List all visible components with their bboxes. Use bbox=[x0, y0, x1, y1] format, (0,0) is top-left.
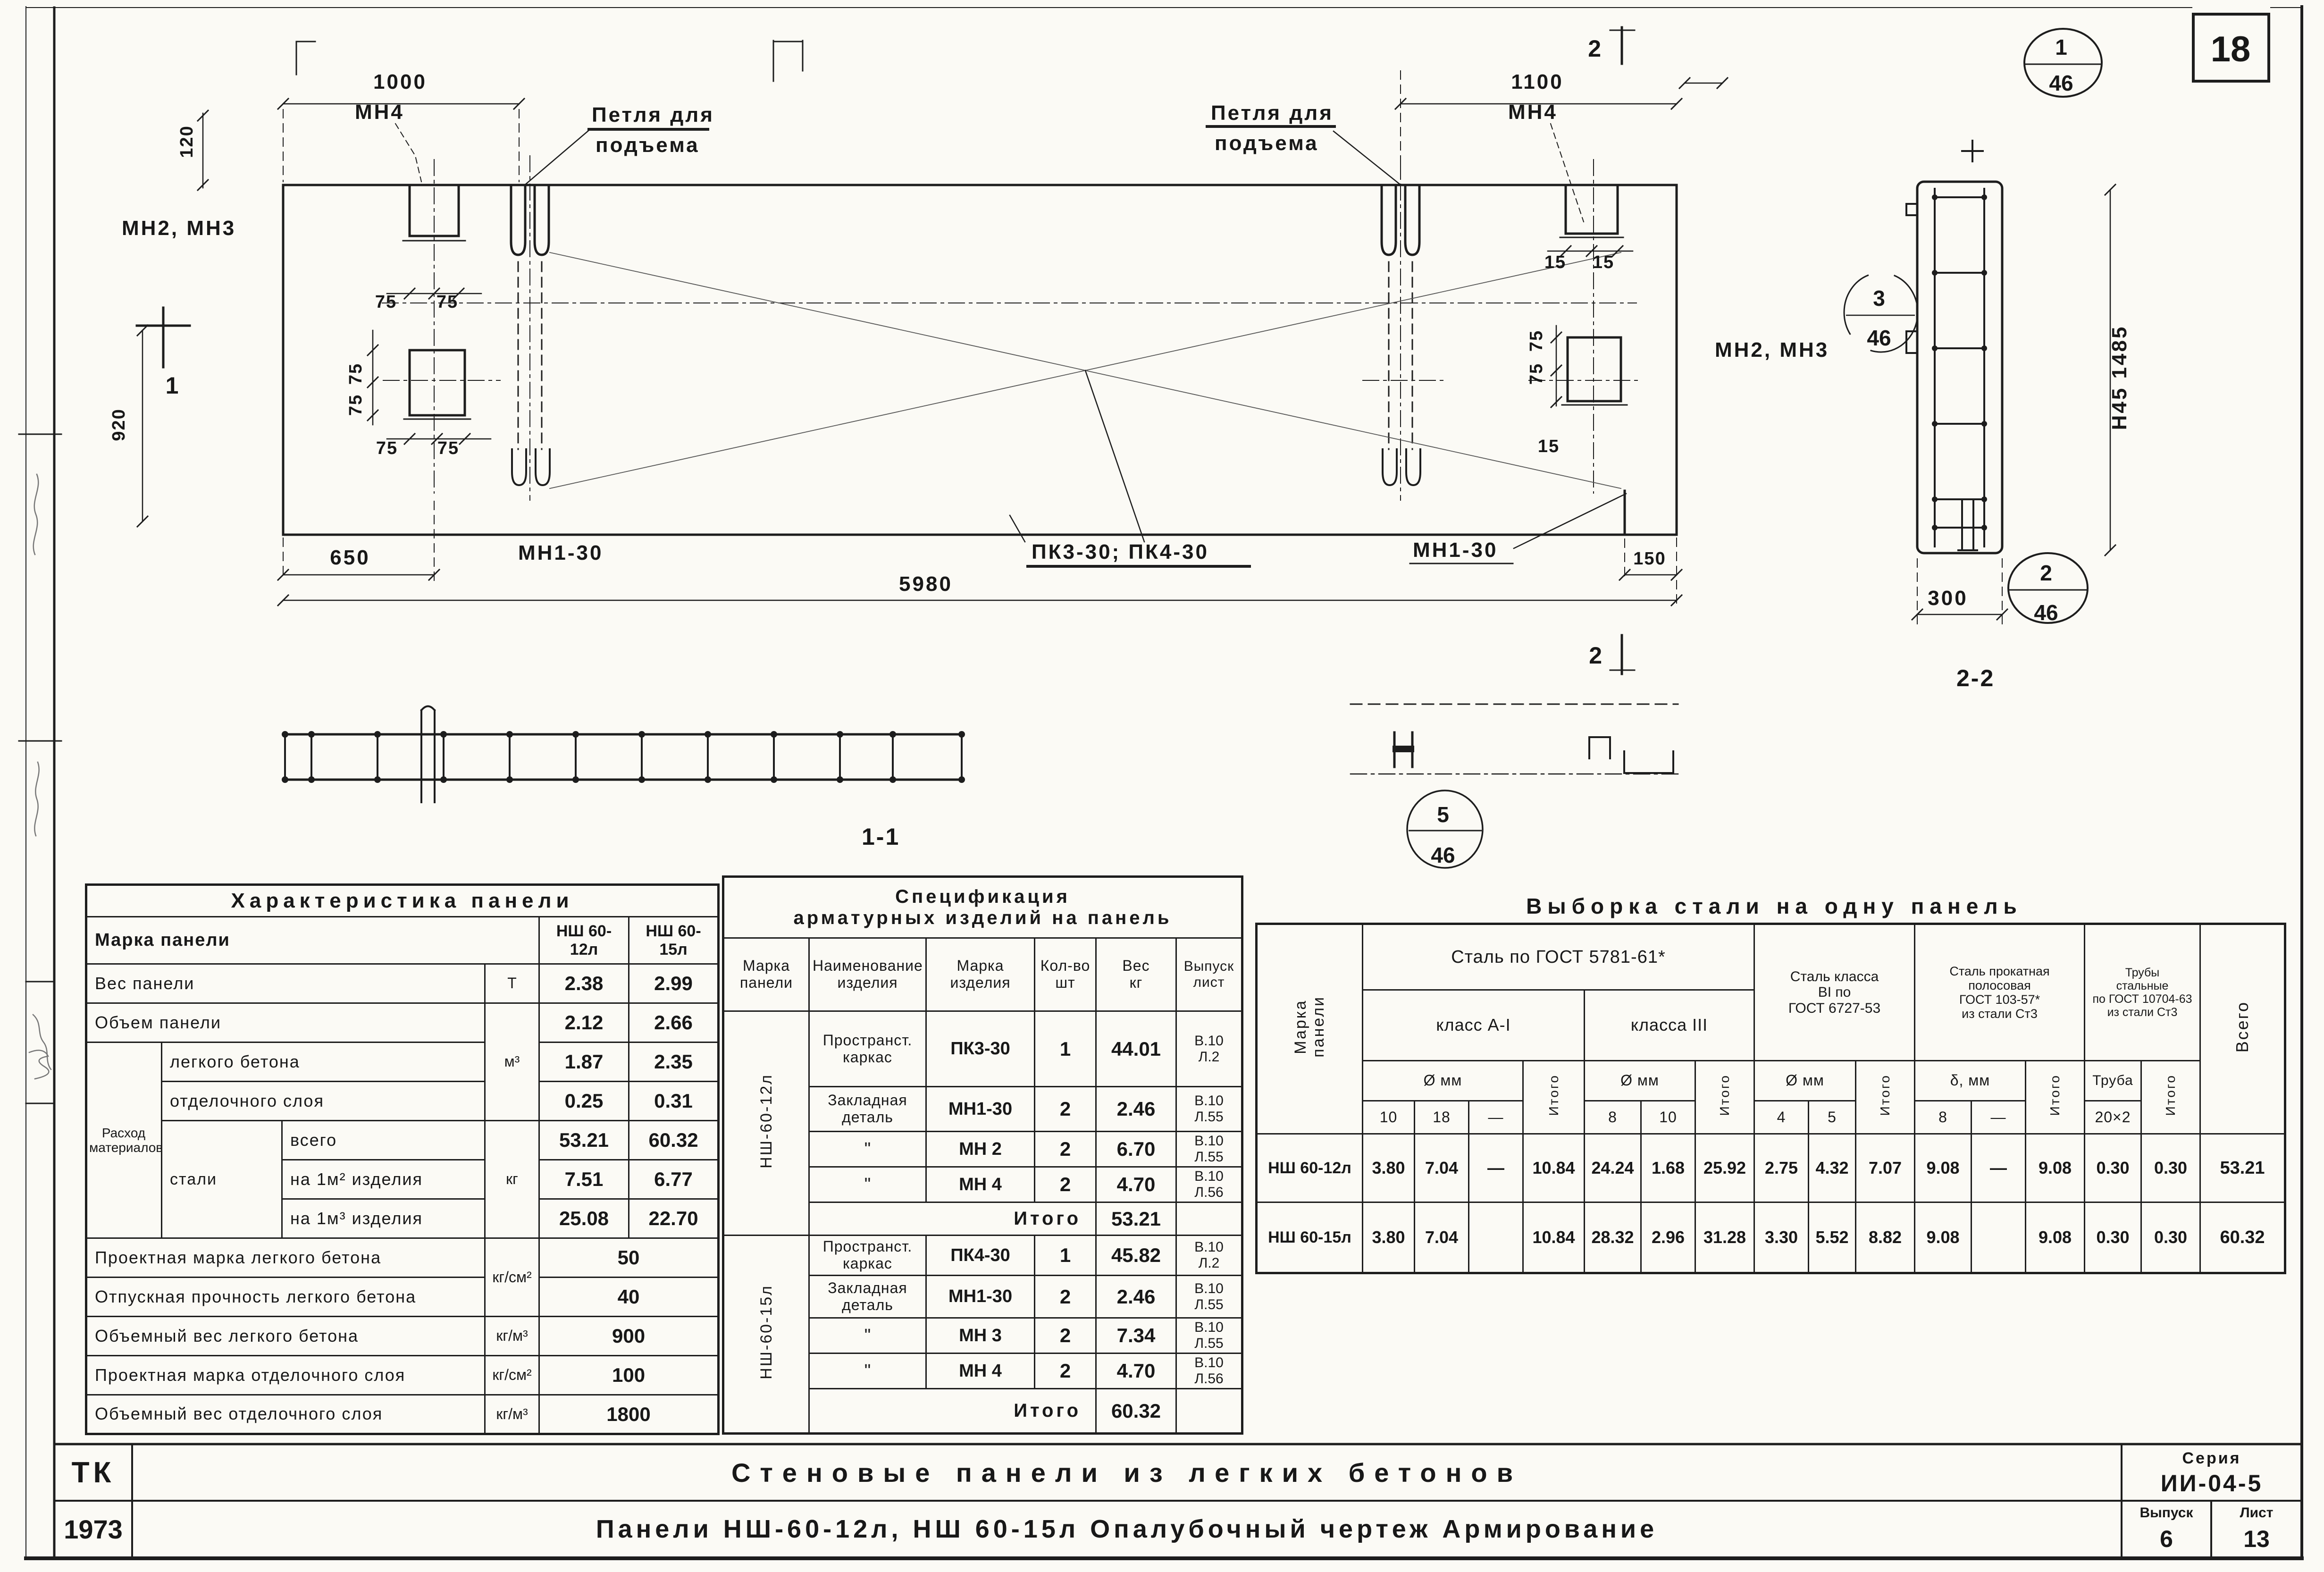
label-mn2-mn3-left: МН2, МН3 bbox=[122, 217, 236, 240]
class-a1-header: класс А-I bbox=[1363, 990, 1585, 1061]
table-row: Вес панели Т 2.38 2.99 bbox=[86, 964, 719, 1003]
label-mn4-left: МН4 bbox=[355, 101, 404, 124]
spec-table-title: Спецификация арматурных изделий на панел… bbox=[723, 877, 1242, 938]
table-row: Проектная марка отделочного слоя кг/см² … bbox=[86, 1356, 719, 1395]
col-header-item-name: Наименование изделия bbox=[809, 938, 926, 1011]
steel-takeoff: Марка панели Сталь по ГОСТ 5781-61* Стал… bbox=[1255, 923, 2286, 1274]
rebar-specification-table: Спецификация арматурных изделий на панел… bbox=[722, 875, 1243, 1435]
char-table-title: Характеристика панели bbox=[86, 885, 719, 917]
label-loop-left-1: Петля для bbox=[592, 103, 714, 126]
panel-mark-rotated: НШ-60-12л bbox=[723, 1011, 809, 1236]
panel-mark-rotated: НШ-60-15л bbox=[723, 1236, 809, 1434]
table-row: НШ 60-12л 3.80 7.04 — 10.84 24.24 1.68 2… bbox=[1257, 1134, 2285, 1202]
table-row: Объемный вес легкого бетона кг/м³ 900 bbox=[86, 1317, 719, 1356]
sheet-title: Панели НШ-60-12л, НШ 60-15л Опалубочный … bbox=[132, 1501, 2122, 1557]
table-row: НШ-60-12л Пространст. каркас ПК3-30 1 44… bbox=[723, 1011, 1242, 1087]
table-row: Проектная марка легкого бетона кг/см² 50 bbox=[86, 1238, 719, 1278]
dim-300: 300 bbox=[1928, 587, 1968, 610]
dim-5980: 5980 bbox=[899, 572, 953, 596]
dim-150: 150 bbox=[1633, 549, 1666, 569]
dim-height-1485: Н45 1485 bbox=[2108, 325, 2131, 430]
bubble-5-sheet: 46 bbox=[1431, 843, 1455, 867]
section-mark-2-top: 2 bbox=[1588, 35, 1602, 62]
dim-15-b: 15 bbox=[1593, 252, 1614, 272]
dim-1000: 1000 bbox=[373, 70, 427, 93]
bubble-2-sheet: 46 bbox=[2034, 600, 2058, 625]
table-row: Расход материалов легкого бетона 1.87 2.… bbox=[86, 1042, 719, 1082]
dim-75-h: 75 bbox=[1527, 363, 1546, 385]
bubble-1-num: 1 bbox=[2055, 35, 2067, 59]
table-row: Отпускная прочность легкого бетона 40 bbox=[86, 1278, 719, 1317]
table-row: НШ 60-15л 3.80 7.04 10.84 28.32 2.96 31.… bbox=[1257, 1202, 2285, 1273]
table-row: Марка панели Сталь по ГОСТ 5781-61* Стал… bbox=[1257, 924, 2285, 990]
label-loop-right-2: подъема bbox=[1215, 132, 1319, 155]
dim-75-e: 75 bbox=[376, 438, 398, 458]
table-row: Ø мм Итого Ø мм Итого Ø мм Итого δ, мм И… bbox=[1257, 1061, 2285, 1101]
table-row: Марка панели Наименование изделия Марка … bbox=[723, 938, 1242, 1011]
col-header-mark-panel: Марка панели bbox=[1257, 924, 1363, 1134]
col-header-item-mark: Марка изделия bbox=[926, 938, 1035, 1011]
dim-75-f: 75 bbox=[437, 438, 459, 458]
group-class-b1: Сталь класса ВI по ГОСТ 6727-53 bbox=[1754, 924, 1915, 1061]
dim-1100: 1100 bbox=[1511, 70, 1563, 93]
col-header-mark-panel: Марка панели bbox=[723, 938, 809, 1011]
series-number: ИИ-04-5 bbox=[2122, 1467, 2302, 1500]
panel-characteristics: Характеристика панели Марка панели НШ 60… bbox=[85, 883, 720, 1435]
label-pk-frames: ПК3-30; ПК4-30 bbox=[1032, 540, 1209, 563]
dim-920: 920 bbox=[109, 408, 129, 441]
bubble-3-sheet: 46 bbox=[1867, 326, 1891, 350]
table-row: Характеристика панели bbox=[86, 885, 719, 917]
sheet-number-cell: 13 bbox=[2211, 1522, 2302, 1555]
table-row: НШ-60-15л Пространст. каркас ПК4-30 1 45… bbox=[723, 1236, 1242, 1276]
bubble-1-sheet: 46 bbox=[2049, 71, 2073, 95]
dim-15-c: 15 bbox=[1538, 437, 1560, 456]
blueprint-sheet: 18 1000 1100 МН4 Петля для подъема Петля… bbox=[0, 0, 2324, 1572]
label-loop-right-1: Петля для bbox=[1211, 101, 1334, 125]
dim-75-g: 75 bbox=[1527, 330, 1546, 352]
class-a3-header: класса III bbox=[1585, 990, 1754, 1061]
col-header-weight: Вес кг bbox=[1096, 938, 1176, 1011]
issue-number: 6 bbox=[2122, 1522, 2211, 1555]
dim-15-a: 15 bbox=[1544, 252, 1566, 272]
table-row: Марка панели НШ 60-12л НШ 60-15л bbox=[86, 917, 719, 964]
steel-takeoff-table: Марка панели Сталь по ГОСТ 5781-61* Стал… bbox=[1255, 923, 2286, 1274]
dim-75-a: 75 bbox=[375, 292, 397, 312]
dim-75-d: 75 bbox=[346, 394, 366, 416]
issue-label: Выпуск bbox=[2122, 1502, 2211, 1524]
year-stamp: 1973 bbox=[54, 1501, 132, 1557]
table-row: Объем панели м³ 2.12 2.66 bbox=[86, 1003, 719, 1042]
consumption-group-label: Расход материалов bbox=[86, 1042, 162, 1238]
dim-75-b: 75 bbox=[436, 292, 458, 312]
org-stamp: ТК bbox=[54, 1444, 132, 1501]
rebar-elevation-1-1 bbox=[282, 704, 1678, 802]
group-gost-5781: Сталь по ГОСТ 5781-61* bbox=[1363, 924, 1754, 990]
table-row: отделочного слоя 0.25 0.31 bbox=[86, 1082, 719, 1121]
table-row: Объемный вес отделочного слоя кг/м³ 1800 bbox=[86, 1395, 719, 1434]
label-mn1-30-right: МН1-30 bbox=[1413, 538, 1498, 562]
group-pipes: Трубы стальные по ГОСТ 10704-63 из стали… bbox=[2085, 924, 2200, 1061]
view-label-2-2: 2-2 bbox=[1956, 665, 1995, 691]
steel-table-title: Выборка стали на одну панель bbox=[1350, 893, 2199, 919]
page-number: 18 bbox=[2211, 29, 2251, 69]
table-row: стали всего кг 53.21 60.32 bbox=[86, 1121, 719, 1160]
sheet-label: Лист bbox=[2211, 1502, 2302, 1524]
label-loop-left-2: подъема bbox=[596, 134, 700, 157]
bubble-3-num: 3 bbox=[1873, 286, 1885, 311]
label-mn2-mn3-right: МН2, МН3 bbox=[1715, 338, 1829, 361]
panel-characteristics-table: Характеристика панели Марка панели НШ 60… bbox=[85, 883, 720, 1435]
label-mn1-30-left: МН1-30 bbox=[518, 541, 604, 564]
table-row: 10 18 — 8 10 4 5 8 — 20×2 bbox=[1257, 1101, 2285, 1134]
bubble-2-num: 2 bbox=[2040, 561, 2052, 585]
section-mark-2-bottom: 2 bbox=[1589, 642, 1603, 669]
col-header-total: Всего bbox=[2200, 924, 2285, 1134]
group-strip-steel: Сталь прокатная полосовая ГОСТ 103-57* и… bbox=[1915, 924, 2085, 1061]
label-mn4-right: МН4 bbox=[1508, 101, 1558, 124]
section-mark-1: 1 bbox=[166, 372, 180, 399]
table-row: Спецификация арматурных изделий на панел… bbox=[723, 877, 1242, 938]
section-2-2 bbox=[1906, 141, 2002, 553]
rebar-specification: Спецификация арматурных изделий на панел… bbox=[722, 875, 1243, 1435]
dim-75-c: 75 bbox=[346, 363, 366, 385]
panel-plan bbox=[283, 156, 1677, 542]
col-header-issue: Выпуск лист bbox=[1176, 938, 1242, 1011]
detail-bubbles bbox=[1407, 29, 2102, 868]
dim-650: 650 bbox=[330, 546, 370, 569]
col-header-qty: Кол-во шт bbox=[1035, 938, 1096, 1011]
view-label-1-1: 1-1 bbox=[862, 824, 900, 850]
series-title: Стеновые панели из легких бетонов bbox=[132, 1444, 2122, 1501]
dim-120: 120 bbox=[177, 125, 197, 158]
bubble-5-num: 5 bbox=[1437, 802, 1449, 827]
